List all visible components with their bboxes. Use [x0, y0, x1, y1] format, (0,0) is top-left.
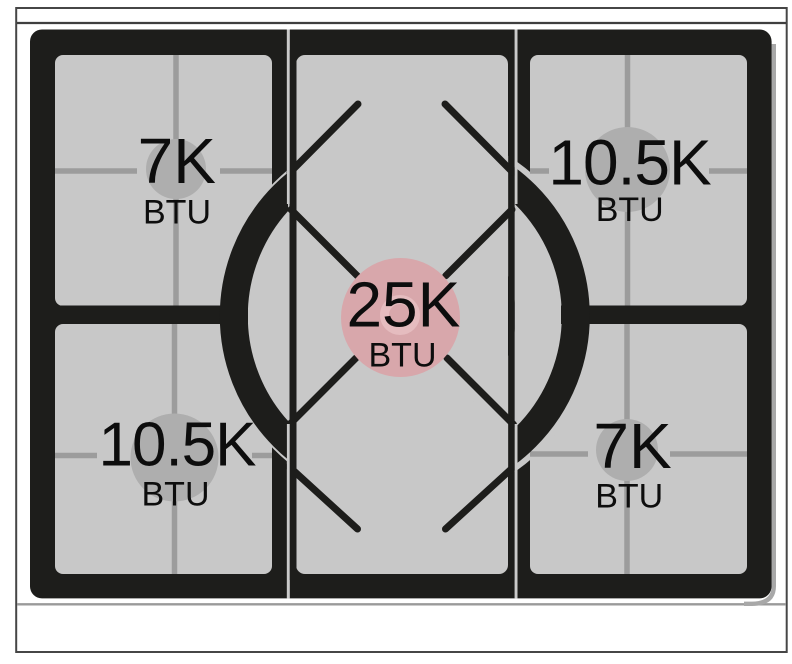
svg-text:BTU: BTU	[596, 191, 664, 229]
svg-text:7K: 7K	[138, 125, 216, 197]
svg-text:BTU: BTU	[369, 337, 437, 375]
svg-text:25K: 25K	[346, 269, 460, 341]
svg-text:BTU: BTU	[595, 478, 663, 516]
svg-text:BTU: BTU	[143, 194, 211, 232]
svg-text:10.5K: 10.5K	[548, 127, 711, 199]
svg-text:10.5K: 10.5K	[98, 411, 256, 480]
svg-text:BTU: BTU	[142, 476, 210, 514]
svg-text:7K: 7K	[593, 410, 671, 482]
